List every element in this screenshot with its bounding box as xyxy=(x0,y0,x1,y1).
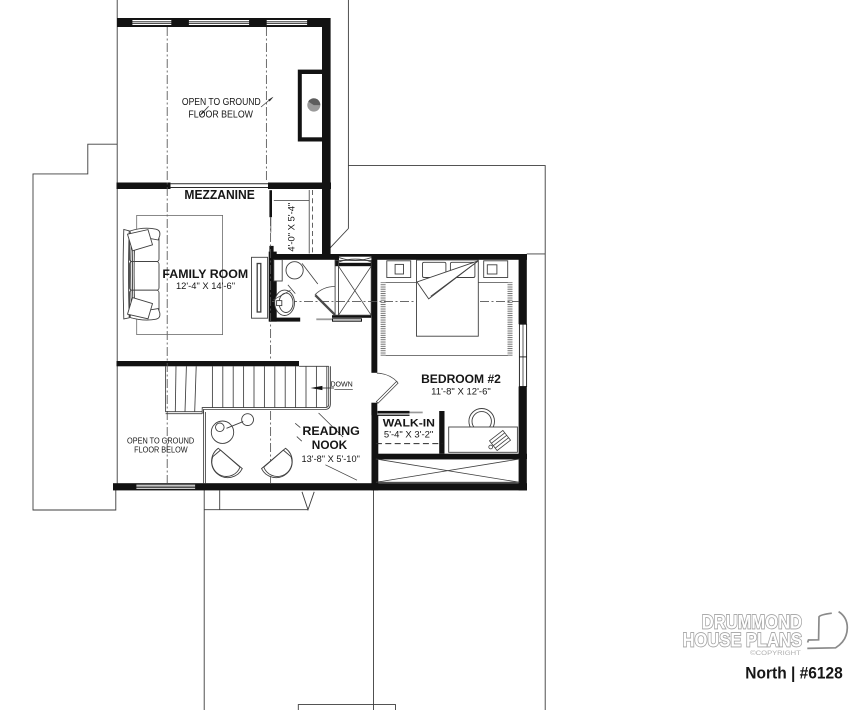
svg-text:4'-0" X 5'-4": 4'-0" X 5'-4" xyxy=(287,203,298,252)
svg-text:13'-8" X 5'-10": 13'-8" X 5'-10" xyxy=(302,454,360,465)
svg-text:North | #6128: North | #6128 xyxy=(745,664,843,682)
svg-text:OPEN TO GROUND: OPEN TO GROUND xyxy=(127,437,195,446)
svg-text:WALK-IN: WALK-IN xyxy=(383,417,435,429)
svg-text:5'-4" X 3'-2": 5'-4" X 3'-2" xyxy=(384,430,433,440)
svg-text:DOWN: DOWN xyxy=(330,380,352,389)
svg-text:HOUSE PLANS: HOUSE PLANS xyxy=(683,629,802,651)
svg-text:FLOOR BELOW: FLOOR BELOW xyxy=(188,110,253,121)
svg-text:OPEN TO GROUND: OPEN TO GROUND xyxy=(182,97,261,108)
svg-text:MEZZANINE: MEZZANINE xyxy=(184,187,255,202)
svg-text:BEDROOM #2: BEDROOM #2 xyxy=(421,372,501,386)
svg-text:11'-8" X 12'-6": 11'-8" X 12'-6" xyxy=(431,386,491,397)
svg-text:FAMILY ROOM: FAMILY ROOM xyxy=(162,267,248,281)
svg-text:12'-4" X 14'-6": 12'-4" X 14'-6" xyxy=(176,281,235,292)
svg-text:©COPYRIGHT: ©COPYRIGHT xyxy=(750,649,801,657)
svg-text:FLOOR BELOW: FLOOR BELOW xyxy=(134,446,188,455)
svg-text:NOOK: NOOK xyxy=(312,438,348,452)
svg-text:READING: READING xyxy=(302,424,360,438)
